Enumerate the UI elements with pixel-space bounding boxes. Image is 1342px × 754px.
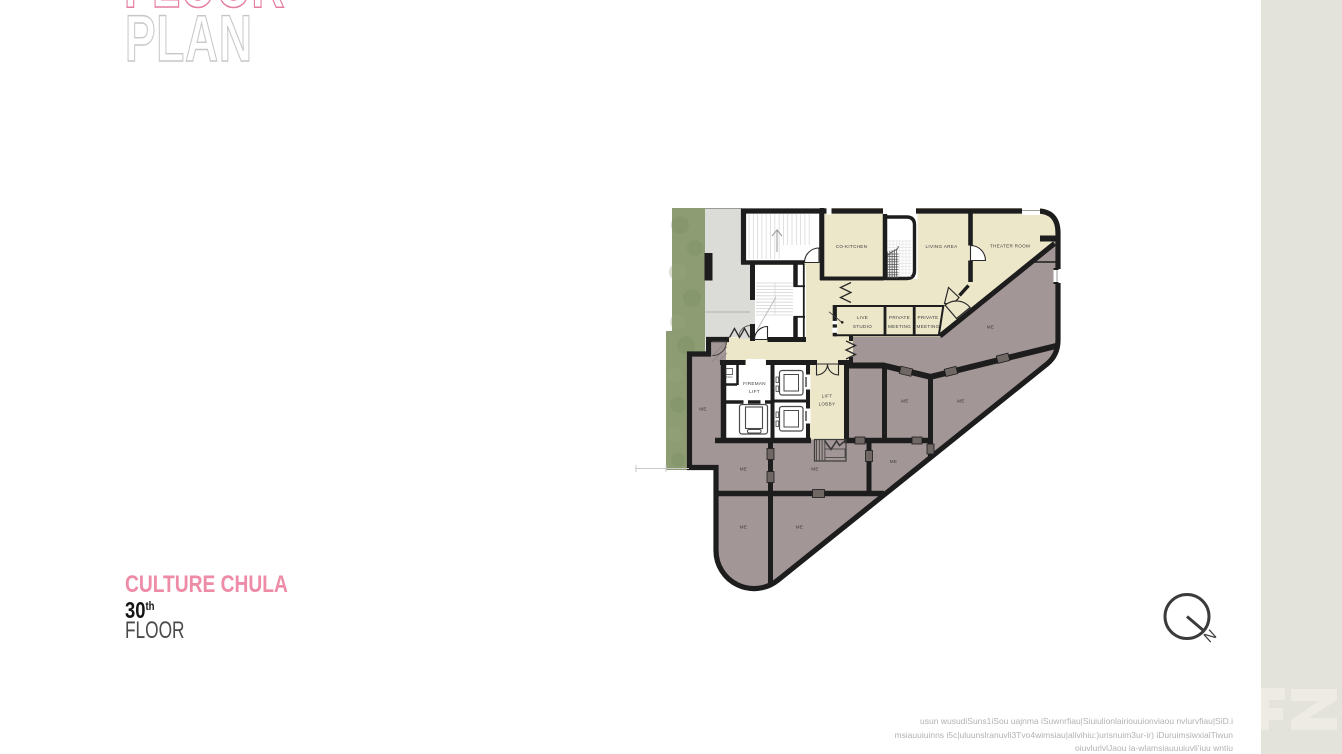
svg-text:ME: ME xyxy=(740,525,748,530)
svg-text:ME: ME xyxy=(796,525,804,530)
svg-text:LOBBY: LOBBY xyxy=(819,402,836,407)
svg-text:ME: ME xyxy=(901,399,909,404)
svg-text:MEETING: MEETING xyxy=(888,324,911,329)
svg-text:LIFT: LIFT xyxy=(822,394,833,399)
svg-text:ME: ME xyxy=(699,407,707,412)
svg-text:FHC: FHC xyxy=(726,375,734,379)
svg-text:ME: ME xyxy=(890,459,898,464)
svg-text:FIREMAN: FIREMAN xyxy=(743,381,766,386)
svg-text:ME: ME xyxy=(957,399,965,404)
svg-text:LIVING AREA: LIVING AREA xyxy=(926,244,959,249)
svg-text:STUDIO: STUDIO xyxy=(853,324,872,329)
svg-text:THEATER ROOM: THEATER ROOM xyxy=(990,244,1030,249)
svg-text:PRIVATE: PRIVATE xyxy=(889,315,910,320)
svg-text:LIFT: LIFT xyxy=(749,389,760,394)
svg-text:ME: ME xyxy=(811,467,819,472)
svg-text:PRIVATE: PRIVATE xyxy=(917,315,938,320)
svg-text:MEETING: MEETING xyxy=(916,324,939,329)
svg-text:ME: ME xyxy=(740,467,748,472)
svg-text:ME: ME xyxy=(987,325,995,330)
svg-text:CO-KITCHEN: CO-KITCHEN xyxy=(836,244,868,249)
svg-text:LIVE: LIVE xyxy=(857,315,868,320)
